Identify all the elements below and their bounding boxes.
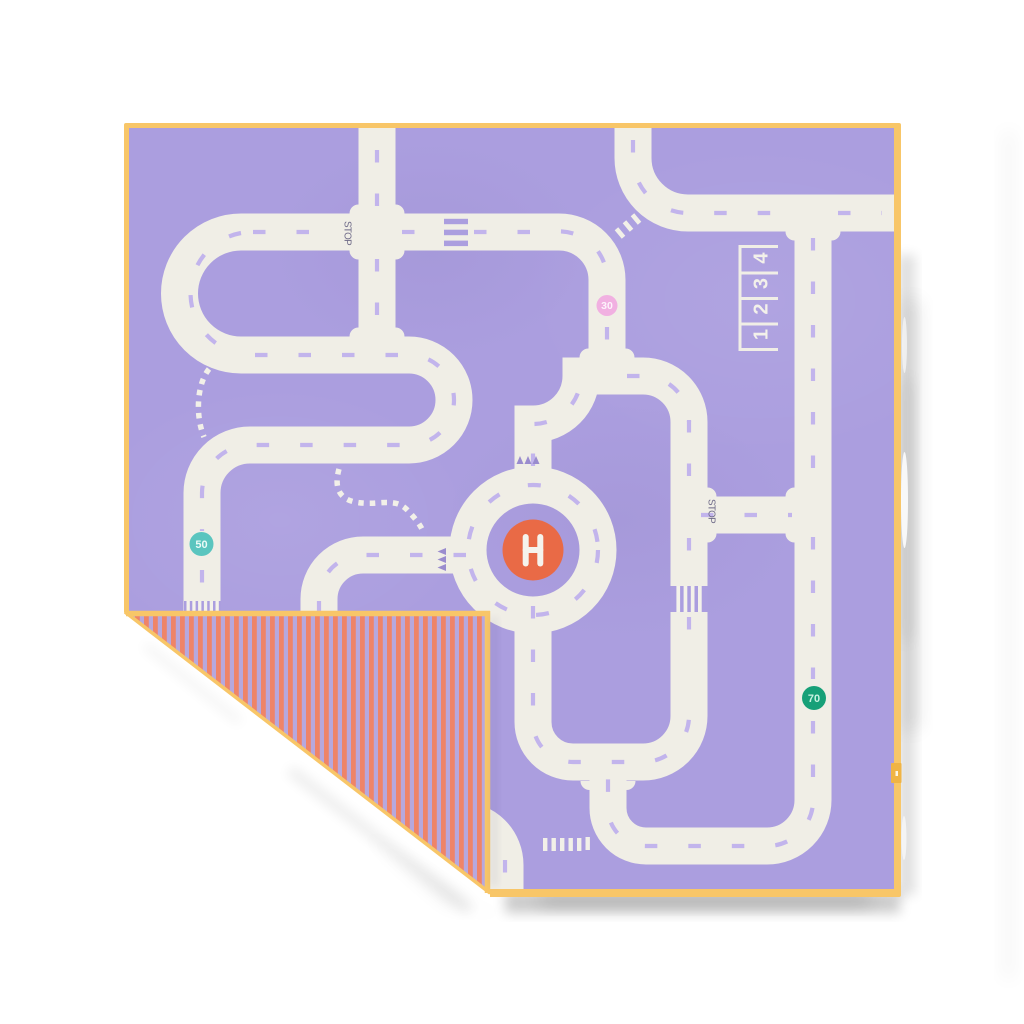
svg-text:30: 30 [601, 300, 613, 312]
svg-text:STOP: STOP [342, 221, 353, 246]
svg-text:3: 3 [751, 278, 773, 289]
svg-text:2: 2 [751, 303, 773, 314]
svg-text:50: 50 [195, 539, 207, 551]
svg-text:4: 4 [751, 252, 773, 264]
svg-text:1: 1 [751, 329, 773, 340]
svg-text:70: 70 [808, 693, 820, 705]
svg-text:STOP: STOP [706, 499, 717, 524]
